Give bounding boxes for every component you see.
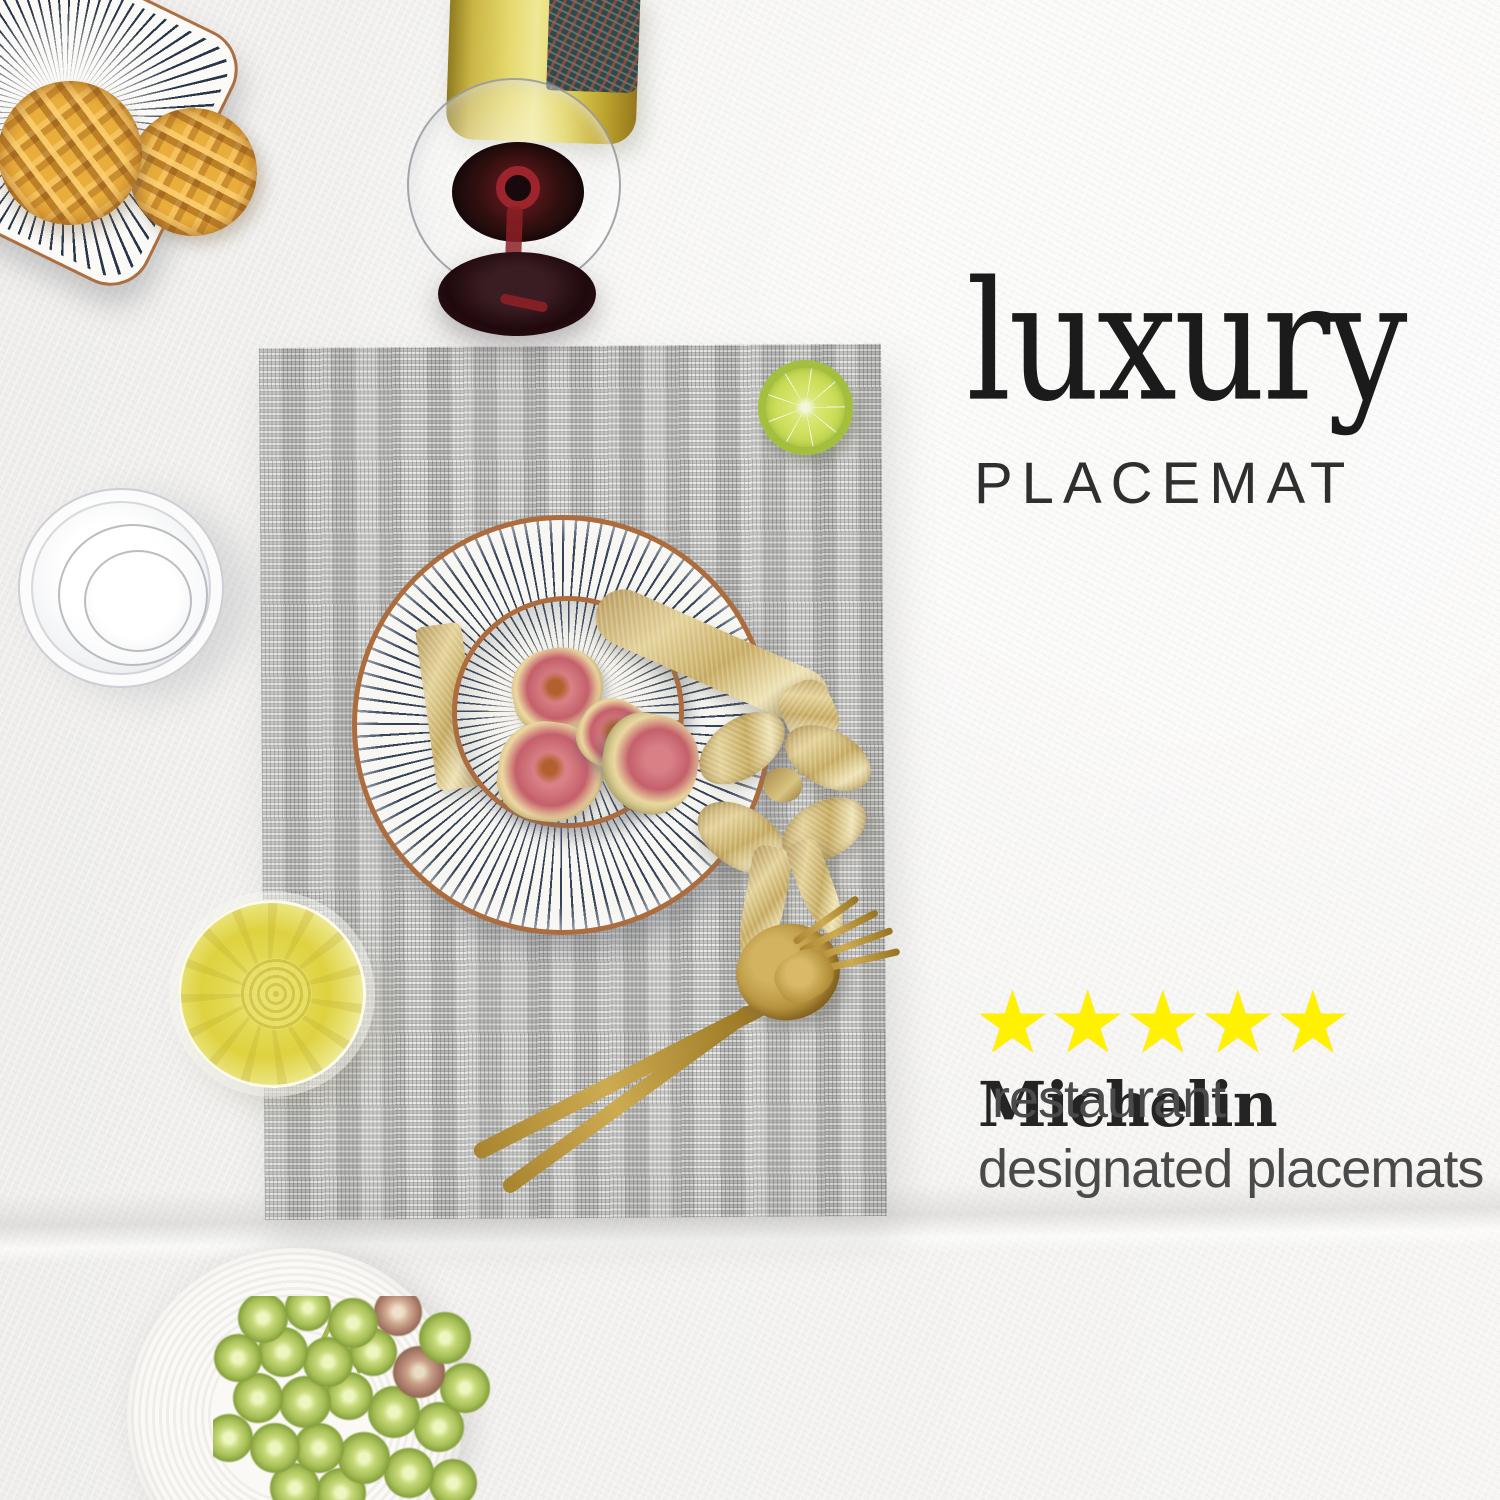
water-glass-ring: [84, 550, 192, 652]
rating-caption-rest: restaurant: [992, 1068, 1225, 1130]
product-headline: luxury: [966, 256, 1405, 429]
rating-caption-line2: designated placemats: [978, 1138, 1483, 1200]
gold-bow-knot: [764, 768, 802, 802]
star-row: ★★★★★: [974, 980, 1350, 1066]
wine-bottle-label: [546, 0, 641, 93]
white-wine-glass: [178, 900, 366, 1088]
wine-glass-medallion: [240, 958, 312, 1030]
water-glass: [18, 488, 224, 688]
red-wine-stem-ring: [496, 166, 540, 210]
lime-half: [758, 360, 853, 455]
product-photo: luxury PLACEMAT ★★★★★ Michelinrestaurant…: [0, 0, 1500, 1500]
product-subheadline: PLACEMAT: [974, 450, 1354, 517]
red-wine-glass-base: [438, 252, 596, 336]
green-grapes: [213, 1296, 493, 1500]
